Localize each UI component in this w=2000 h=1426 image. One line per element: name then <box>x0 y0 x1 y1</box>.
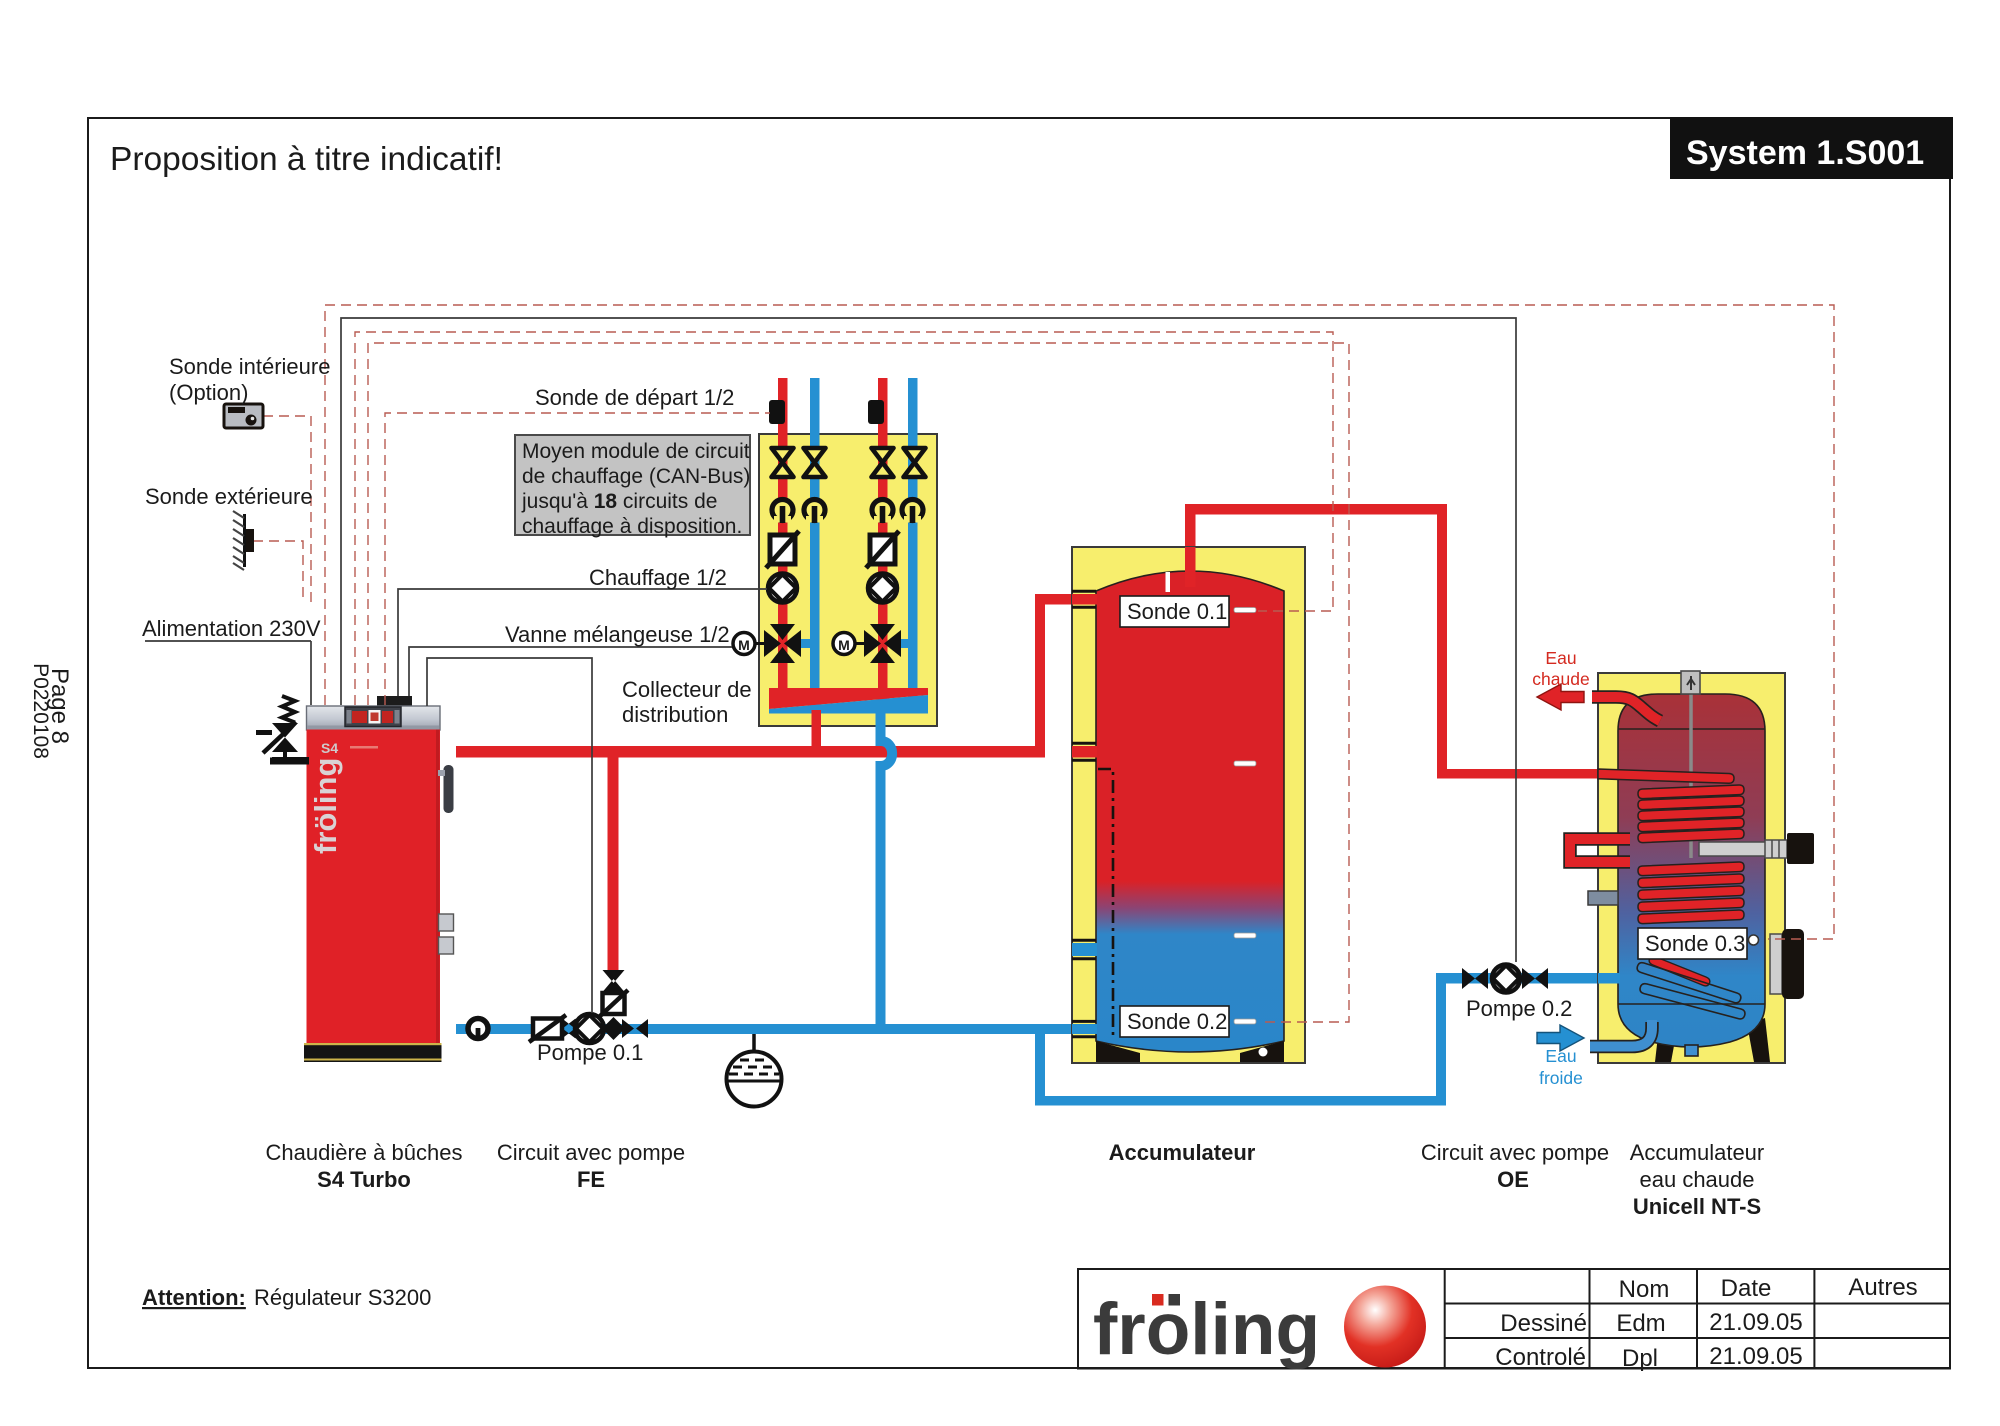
svg-text:Sonde de départ 1/2: Sonde de départ 1/2 <box>535 385 734 410</box>
svg-text:FE: FE <box>577 1167 605 1192</box>
svg-text:Accumulateur: Accumulateur <box>1109 1140 1256 1165</box>
svg-text:Autres: Autres <box>1848 1274 1917 1301</box>
svg-text:de chauffage (CAN-Bus): de chauffage (CAN-Bus) <box>522 465 750 488</box>
svg-text:Proposition à titre indicatif!: Proposition à titre indicatif! <box>110 141 503 178</box>
svg-text:21.09.05: 21.09.05 <box>1709 1343 1802 1370</box>
svg-text:21.09.05: 21.09.05 <box>1709 1309 1802 1336</box>
svg-text:Eau: Eau <box>1545 1046 1576 1066</box>
svg-text:Régulateur S3200: Régulateur S3200 <box>254 1285 431 1310</box>
svg-text:Nom: Nom <box>1619 1276 1670 1303</box>
svg-text:Circuit avec pompe: Circuit avec pompe <box>497 1140 685 1165</box>
svg-text:jusqu'à 18 circuits de: jusqu'à 18 circuits de <box>521 490 717 513</box>
svg-text:Sonde 0.2: Sonde 0.2 <box>1127 1009 1227 1034</box>
svg-text:Eau: Eau <box>1545 648 1576 668</box>
svg-text:fröling: fröling <box>308 758 343 854</box>
svg-text:Sonde intérieure: Sonde intérieure <box>169 354 330 379</box>
svg-text:S4 Turbo: S4 Turbo <box>317 1167 411 1192</box>
svg-text:M: M <box>738 637 750 653</box>
svg-text:Edm: Edm <box>1616 1310 1665 1337</box>
svg-text:Vanne mélangeuse 1/2: Vanne mélangeuse 1/2 <box>505 622 730 647</box>
svg-text:Sonde 0.1: Sonde 0.1 <box>1127 599 1227 624</box>
svg-text:Dpl: Dpl <box>1622 1345 1658 1372</box>
svg-text:Circuit avec pompe: Circuit avec pompe <box>1421 1140 1609 1165</box>
svg-text:Sonde 0.3: Sonde 0.3 <box>1645 931 1745 956</box>
svg-text:Controlé: Controlé <box>1495 1344 1586 1371</box>
svg-text:Pompe 0.2: Pompe 0.2 <box>1466 996 1572 1021</box>
svg-text:Moyen module de circuit: Moyen module de circuit <box>522 440 750 463</box>
svg-text:Alimentation 230V: Alimentation 230V <box>142 616 321 641</box>
svg-text:System 1.S001: System 1.S001 <box>1686 134 1924 172</box>
svg-text:Attention:: Attention: <box>142 1285 246 1310</box>
svg-text:Date: Date <box>1721 1275 1772 1302</box>
svg-text:froide: froide <box>1539 1068 1583 1088</box>
svg-text:Sonde extérieure: Sonde extérieure <box>145 484 313 509</box>
svg-text:distribution: distribution <box>622 702 728 727</box>
svg-text:(Option): (Option) <box>169 380 248 405</box>
svg-text:Collecteur de: Collecteur de <box>622 677 752 702</box>
svg-text:S4: S4 <box>321 740 338 756</box>
svg-text:P0220108: P0220108 <box>29 663 52 759</box>
svg-text:Chauffage 1/2: Chauffage 1/2 <box>589 565 727 590</box>
svg-text:Unicell NT-S: Unicell NT-S <box>1633 1194 1761 1219</box>
svg-text:chauffage à disposition.: chauffage à disposition. <box>522 515 742 538</box>
svg-text:Chaudière à bûches: Chaudière à bûches <box>266 1140 463 1165</box>
svg-text:M: M <box>838 637 850 653</box>
svg-text:chaude: chaude <box>1532 669 1589 689</box>
svg-text:Pompe 0.1: Pompe 0.1 <box>537 1040 643 1065</box>
svg-text:Accumulateur: Accumulateur <box>1630 1140 1765 1165</box>
svg-text:Dessiné: Dessiné <box>1500 1310 1587 1337</box>
svg-text:eau chaude: eau chaude <box>1640 1167 1755 1192</box>
svg-text:OE: OE <box>1497 1167 1529 1192</box>
svg-text:froling: froling <box>1093 1289 1320 1370</box>
